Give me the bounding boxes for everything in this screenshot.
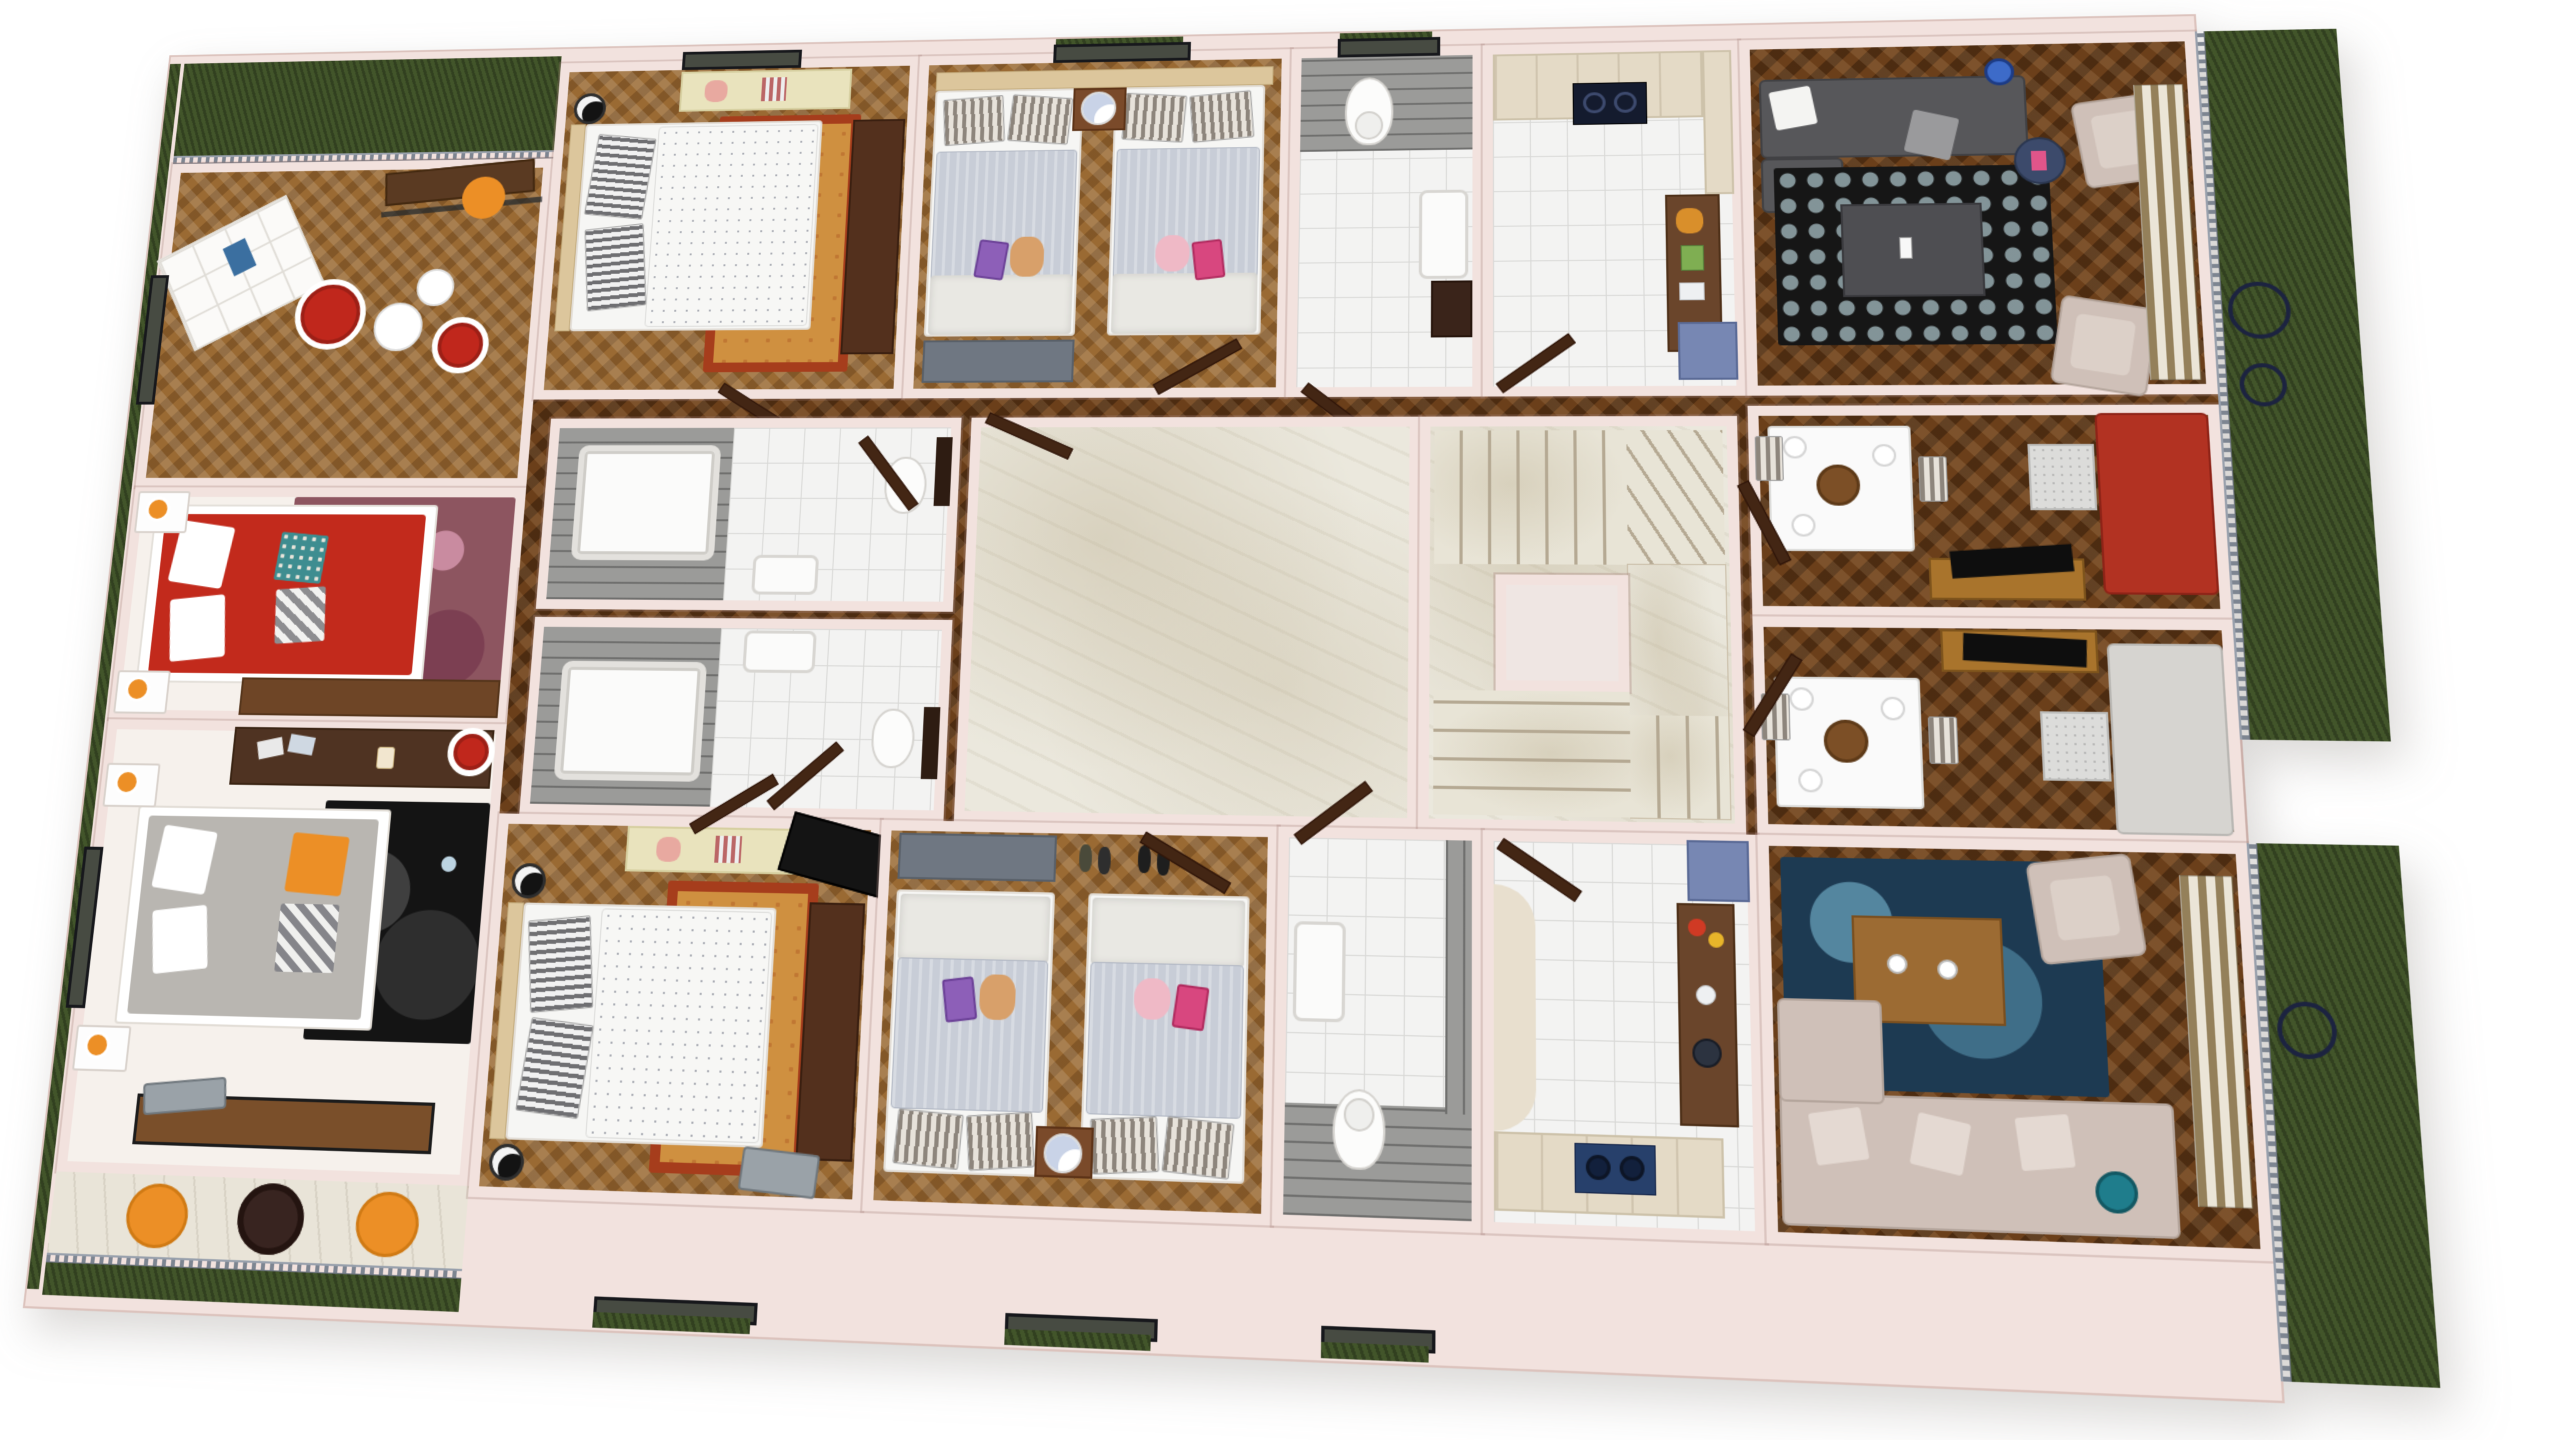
window-twin-n <box>1053 42 1191 63</box>
twin-sheet-n1 <box>928 274 1073 334</box>
toilet-s-lid <box>1344 1098 1375 1132</box>
clothes-pink2-s <box>1134 978 1171 1020</box>
kitchen-n-tall-unit <box>1702 50 1734 194</box>
stairs-lower-flight <box>1433 690 1631 818</box>
island-n-bread <box>1676 208 1704 234</box>
orange-cushion <box>284 832 350 896</box>
cooktop-s-ring2 <box>1620 1156 1645 1182</box>
chair-a2 <box>1918 456 1948 501</box>
window-bedroom-n <box>682 50 802 70</box>
cooktop-s-ring1 <box>1586 1155 1611 1181</box>
striped-pillow-s1 <box>528 915 593 1012</box>
duvet-s <box>585 908 772 1143</box>
clothes-plaid-s <box>714 836 742 863</box>
clothes-tan-n <box>1009 237 1044 277</box>
armchair-beige-se-pillow <box>2049 875 2121 941</box>
sofa-beige-pillow-1 <box>1808 1107 1870 1166</box>
fruit-bowl-a <box>1816 465 1861 506</box>
clothes-pink2-n <box>1155 235 1190 272</box>
clothes-pink-n <box>704 80 728 102</box>
sofa-white-pillow-1 <box>1768 86 1817 131</box>
sofa-grey <box>2107 643 2235 836</box>
room-marble-hall <box>954 417 1420 829</box>
clothes-tan-s <box>979 974 1017 1020</box>
plate-a2 <box>1872 444 1897 467</box>
shoes-1 <box>1079 844 1092 872</box>
garden-northwest <box>174 56 562 156</box>
plate-b1 <box>1789 687 1814 711</box>
window-wc-n <box>1338 37 1441 58</box>
twin-pillow-n1a <box>943 95 1005 146</box>
wood-bench <box>238 677 500 718</box>
bathtub-a <box>571 445 722 560</box>
island-s-fruit-yellow <box>1708 932 1724 948</box>
wc-s-plank-right <box>1445 840 1472 1115</box>
kitchen-s-blue-sideboard <box>1687 840 1750 902</box>
side-table-marble-b <box>2040 711 2112 781</box>
chair-a1 <box>1755 436 1784 481</box>
clothes-purple-s <box>942 976 977 1022</box>
duvet-n <box>644 124 818 327</box>
grey-chest-n <box>921 340 1074 383</box>
island-s-fruit-red <box>1688 919 1706 937</box>
plate-b2 <box>1880 697 1905 721</box>
photo-print-2 <box>287 734 316 756</box>
twin-sheet-s1 <box>898 894 1051 963</box>
cup-2 <box>1937 959 1958 980</box>
armchair-beige-2-cushion <box>2070 313 2137 376</box>
daybed-cushion-2 <box>170 594 226 662</box>
coffee-table-grey <box>1840 203 1985 297</box>
basin-b <box>742 630 817 673</box>
island-n-dish <box>1679 282 1705 300</box>
stairwell-void <box>1495 574 1629 691</box>
island-s-glass <box>1696 985 1717 1006</box>
shoes-3 <box>1138 845 1151 873</box>
sofa-beige-corner-return <box>1777 998 1885 1105</box>
teal-diamond-pillow <box>273 531 329 584</box>
plate-a3 <box>1791 514 1816 537</box>
twin-sheet-n2 <box>1111 273 1258 334</box>
island-n-greenbox <box>1681 245 1705 271</box>
side-table-pink-card <box>2031 151 2047 171</box>
clothes-magenta-n <box>1191 239 1225 281</box>
island-s-blender <box>1692 1038 1722 1068</box>
cup-1 <box>1887 954 1908 975</box>
sofa-red <box>2094 413 2219 595</box>
sofa-beige-pillow-3 <box>2014 1114 2075 1171</box>
basin-a <box>751 555 819 595</box>
side-table-marble-a <box>2027 444 2097 510</box>
basin-n <box>1419 190 1469 279</box>
suitcase <box>143 1077 226 1115</box>
basin-s <box>1293 921 1346 1022</box>
stairs-lower-steps <box>1630 715 1731 819</box>
kitchen-n-blue-sideboard <box>1678 322 1739 380</box>
phone <box>1899 237 1913 259</box>
screenshot-canvas <box>0 0 2560 1440</box>
striped-pillow-n2 <box>585 223 647 311</box>
clothes-magenta-s <box>1171 984 1209 1032</box>
twin-pillow-n1b <box>1007 94 1073 144</box>
plate-a1 <box>1783 436 1807 458</box>
bathtub-b <box>554 661 707 782</box>
grey-chest-s <box>897 833 1057 882</box>
shoes-2 <box>1098 847 1111 875</box>
kitchen-s-arch <box>1494 884 1537 1132</box>
twin-pillow-s2b <box>1162 1116 1235 1180</box>
desk-mug <box>376 747 396 769</box>
clothes-plaid-n <box>761 77 787 101</box>
twin-pillow-n2a <box>1121 93 1187 143</box>
plate-b3 <box>1798 768 1823 792</box>
stairs-upper-flight <box>1434 430 1628 565</box>
shelf-dark-a <box>934 437 953 506</box>
twin-pillow-s1a <box>892 1108 963 1170</box>
white-cushion-2 <box>152 905 207 974</box>
floor-plan <box>25 13 2454 1408</box>
vanity-n <box>1431 280 1473 337</box>
twin-pillow-s1b <box>966 1112 1034 1171</box>
stairs-winders <box>1626 430 1725 565</box>
shelf-dark-b <box>921 707 941 779</box>
clothes-pink-s <box>656 837 682 862</box>
twin-pillow-s2a <box>1090 1116 1159 1174</box>
twin-pillow-n2b <box>1189 90 1254 143</box>
chevron-throw <box>274 903 339 973</box>
twin-sheet-s2 <box>1091 898 1246 968</box>
chair-b2 <box>1928 716 1959 764</box>
chevron-pillow <box>274 586 325 644</box>
